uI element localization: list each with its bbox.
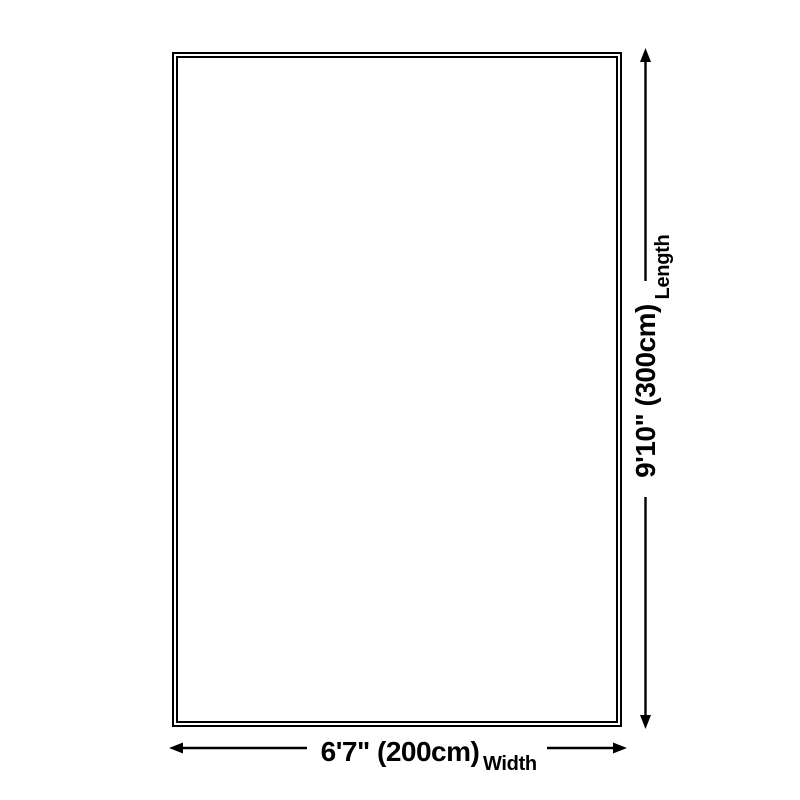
arrow-left-icon xyxy=(169,743,183,754)
dimension-diagram: 9'10" (300cm) Length 6'7" (200cm) Width xyxy=(0,0,800,800)
arrow-right-icon xyxy=(613,743,627,754)
length-dimension-label: Length xyxy=(649,217,677,317)
product-outline-outer xyxy=(172,52,622,727)
arrow-up-icon xyxy=(640,48,651,62)
width-dimension-value: 6'7" (200cm) xyxy=(310,736,490,768)
product-outline-inner xyxy=(176,56,618,723)
width-dimension-label: Width xyxy=(483,753,543,775)
arrow-down-icon xyxy=(640,715,651,729)
